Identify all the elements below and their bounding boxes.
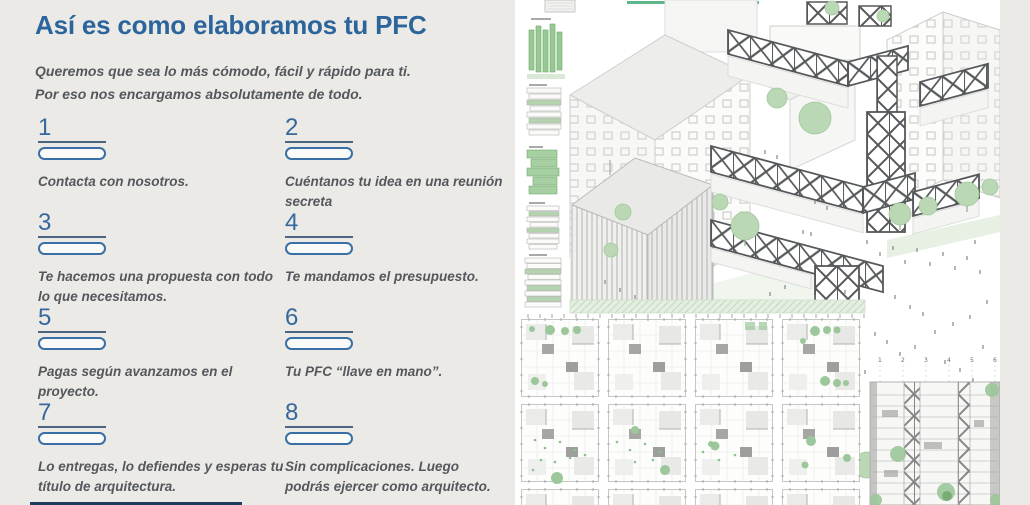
step-7-pill-shape <box>38 432 106 445</box>
step-2-number: 2 <box>285 114 298 141</box>
step-2-text: Cuéntanos tu idea en una reunión secreta <box>285 172 503 213</box>
step-3: 3 Te hacemos una propuesta con todo lo q… <box>38 211 288 308</box>
step-8-number: 8 <box>285 399 298 426</box>
step-2-pill-shape <box>285 147 353 160</box>
step-4-number: 4 <box>285 209 298 236</box>
step-3-number: 3 <box>38 209 51 236</box>
step-7-number-row: 7 <box>38 401 106 428</box>
step-5-number: 5 <box>38 304 51 331</box>
step-5-pill-shape <box>38 337 106 350</box>
step-7: 7 Lo entregas, lo defiendes y esperas tu… <box>38 401 288 498</box>
step-5: 5 Pagas según avanzamos en el proyecto. <box>38 306 288 403</box>
step-1-number: 1 <box>38 114 51 141</box>
grid-label-5: 5 <box>970 357 974 364</box>
grid-label-3: 3 <box>924 357 928 364</box>
architecture-illustration: 1 2 3 4 5 6 <box>515 0 1000 505</box>
process-section: Así es como elaboramos tu PFC Queremos q… <box>0 0 515 505</box>
grid-label-2: 2 <box>901 357 905 364</box>
step-7-text: Lo entregas, lo defiendes y esperas tu t… <box>38 457 288 498</box>
step-3-number-row: 3 <box>38 211 106 238</box>
step-4-pill-shape <box>285 242 353 255</box>
step-4: 4 Te mandamos el presupuesto. <box>285 211 503 287</box>
step-1-pill-shape <box>38 147 106 160</box>
step-8-number-row: 8 <box>285 401 353 428</box>
subtitle-line-1: Queremos que sea lo más cómodo, fácil y … <box>35 63 411 79</box>
subtitle-line-2: Por eso nos encargamos absolutamente de … <box>35 86 363 102</box>
step-4-number-row: 4 <box>285 211 353 238</box>
step-8-text: Sin complicaciones. Luego podrás ejercer… <box>285 457 503 498</box>
roof-band <box>520 300 868 318</box>
project-board-image: 1 2 3 4 5 6 <box>515 0 1000 505</box>
step-3-text: Te hacemos una propuesta con todo lo que… <box>38 267 288 308</box>
step-1-text: Contacta con nosotros. <box>38 172 288 192</box>
grid-label-4: 4 <box>947 357 951 364</box>
step-1-number-row: 1 <box>38 116 106 143</box>
page: Así es como elaboramos tu PFC Queremos q… <box>0 0 1030 505</box>
intro-subtitle: Queremos que sea lo más cómodo, fácil y … <box>35 60 411 105</box>
step-3-pill-shape <box>38 242 106 255</box>
step-6-text: Tu PFC “llave en mano”. <box>285 362 503 382</box>
step-1: 1 Contacta con nosotros. <box>38 116 288 192</box>
page-title: Así es como elaboramos tu PFC <box>35 10 427 41</box>
step-2: 2 Cuéntanos tu idea en una reunión secre… <box>285 116 503 213</box>
grid-label-1: 1 <box>878 357 882 364</box>
step-6-pill-shape <box>285 337 353 350</box>
step-5-number-row: 5 <box>38 306 106 333</box>
step-5-text: Pagas según avanzamos en el proyecto. <box>38 362 288 403</box>
grid-label-6: 6 <box>993 357 997 364</box>
step-2-number-row: 2 <box>285 116 353 143</box>
step-6-number: 6 <box>285 304 298 331</box>
step-6: 6 Tu PFC “llave en mano”. <box>285 306 503 382</box>
step-6-number-row: 6 <box>285 306 353 333</box>
step-7-number: 7 <box>38 399 51 426</box>
step-4-text: Te mandamos el presupuesto. <box>285 267 503 287</box>
step-8: 8 Sin complicaciones. Luego podrás ejerc… <box>285 401 503 498</box>
step-8-pill-shape <box>285 432 353 445</box>
